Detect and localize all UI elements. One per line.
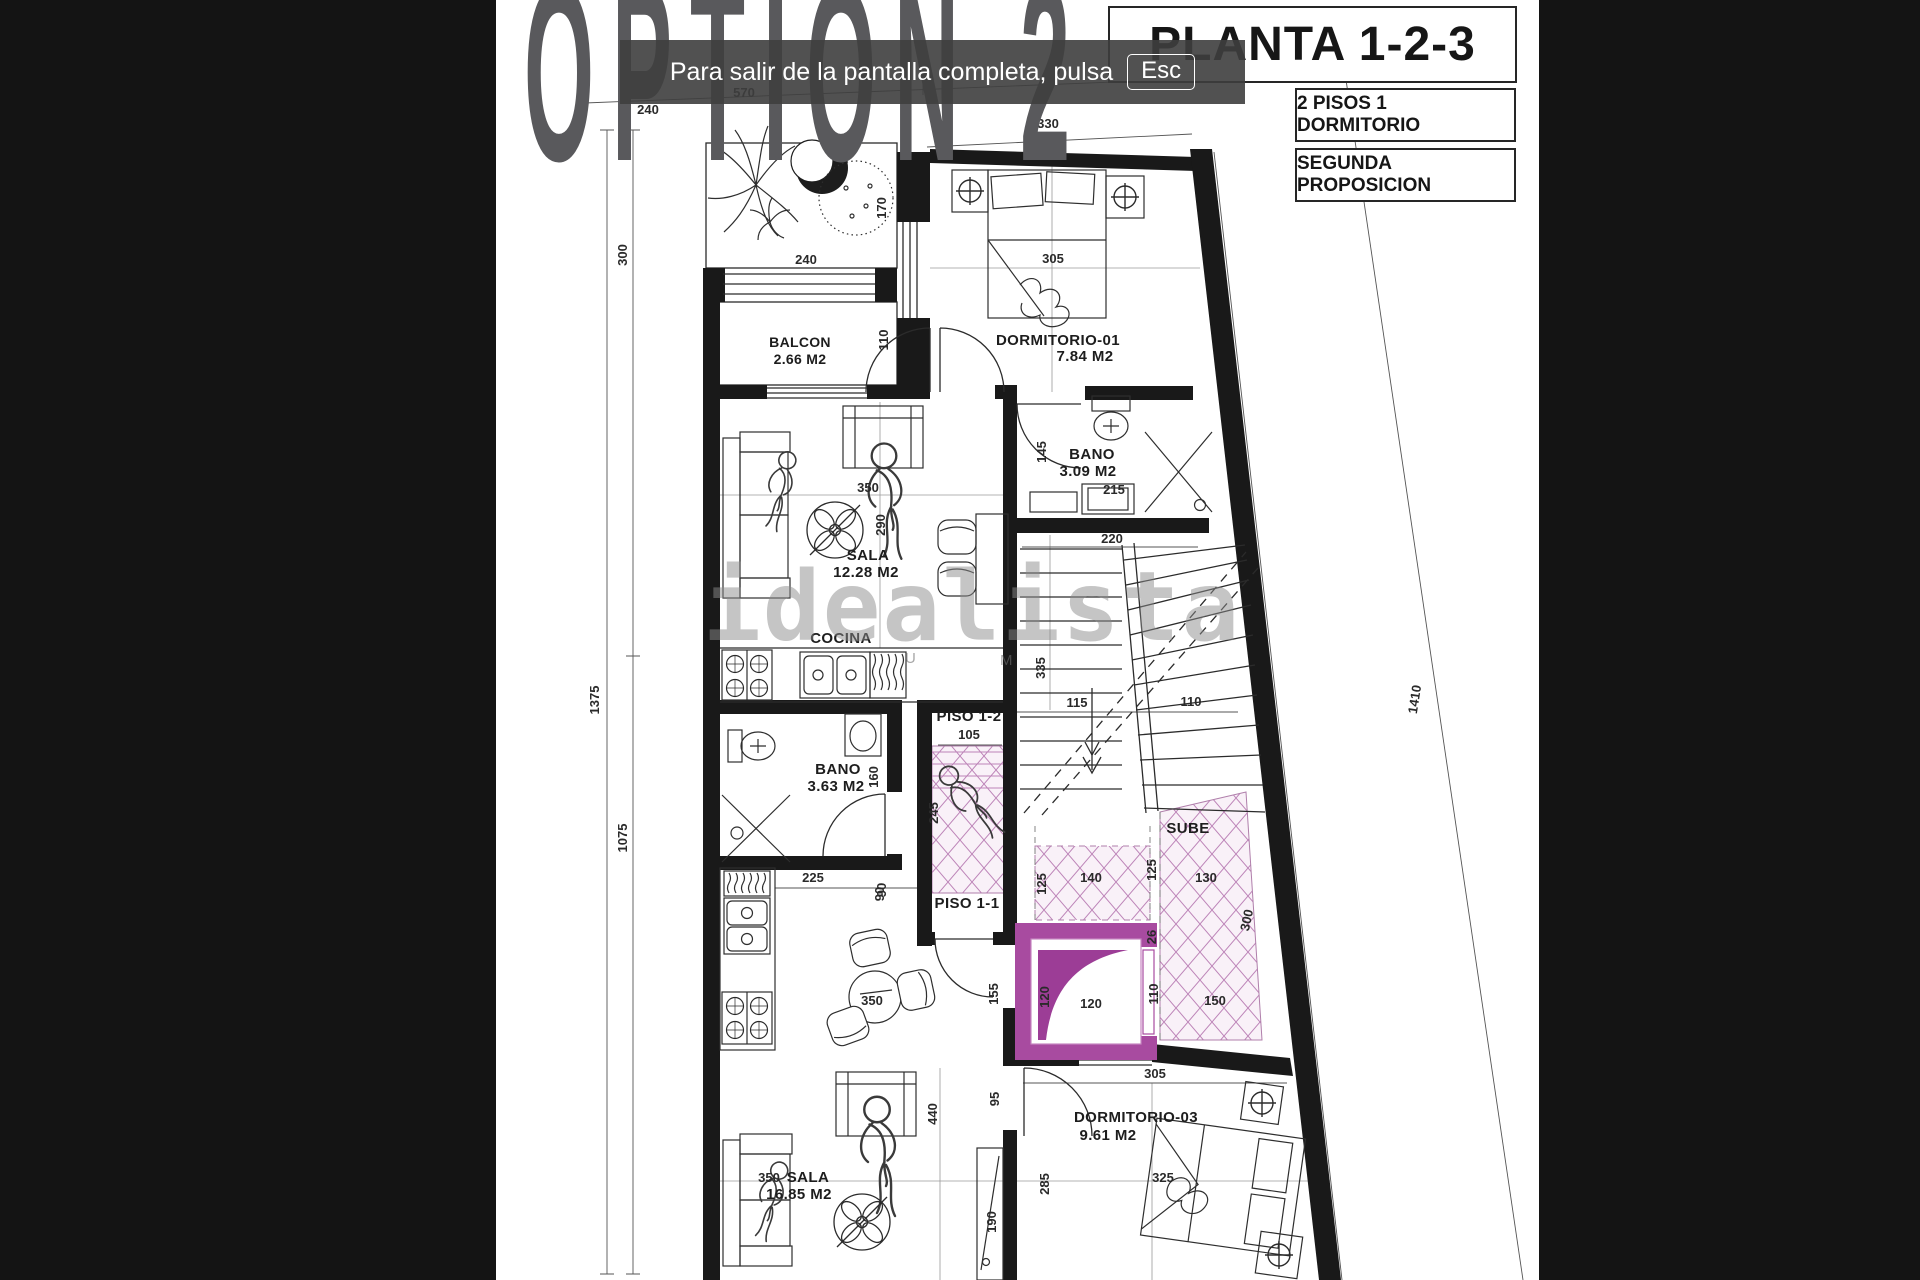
dim-elev-120v: 120	[1037, 986, 1052, 1008]
dim-balcon-110: 110	[876, 330, 891, 351]
room-label-balcon: BALCON	[769, 334, 831, 350]
room-area-dorm03: 9.61 M2	[1080, 1127, 1137, 1144]
esc-key-hint: Esc	[1127, 54, 1195, 90]
dim-sala2-350: 350	[758, 1170, 780, 1185]
dim-hatchA-125R: 125	[1144, 859, 1159, 881]
dim-table2-350: 350	[861, 993, 883, 1008]
dim-sala2-95: 95	[987, 1092, 1002, 1106]
dim-dorm01-305: 305	[1042, 251, 1064, 266]
room-label-dorm03: DORMITORIO-03	[1074, 1109, 1198, 1126]
watermark-fragment-right: M	[1000, 652, 1013, 669]
dim-left-300: 300	[615, 244, 630, 266]
dim-stairs-115: 115	[1067, 695, 1088, 710]
fullscreen-image-viewer: 240 570 330 240 170 1375 300 1075 1410 B…	[0, 0, 1920, 1280]
dim-bano2-160: 160	[866, 766, 881, 788]
plan-subtitle1-box: 2 PISOS 1 DORMITORIO	[1295, 88, 1516, 142]
dim-elev-110: 110	[1146, 984, 1161, 1005]
room-area-dorm01: 7.84 M2	[1057, 348, 1114, 365]
dim-dorm03-305: 305	[1144, 1066, 1166, 1081]
dim-stairs-110: 110	[1181, 694, 1202, 709]
watermark-fragment-left: U	[905, 650, 916, 667]
room-label-sala2: SALA	[787, 1169, 829, 1186]
plan-subtitle2-text: SEGUNDA PROPOSICION	[1297, 153, 1514, 197]
room-area-bano2: 3.63 M2	[808, 778, 865, 795]
dim-sala1-350: 350	[857, 480, 879, 495]
dim-hatchB-150: 150	[1204, 993, 1226, 1008]
dim-hatchA-140: 140	[1080, 870, 1102, 885]
dim-piso12-245: 245	[926, 802, 941, 824]
room-label-bano1: BANO	[1069, 446, 1115, 463]
room-label-bano2: BANO	[815, 761, 861, 778]
room-area-bano1: 3.09 M2	[1060, 463, 1117, 480]
dim-left-1375: 1375	[587, 686, 602, 715]
dim-dorm03-285: 285	[1037, 1173, 1052, 1195]
room-area-balcon: 2.66 M2	[774, 351, 827, 367]
dim-kit2-225: 225	[802, 870, 824, 885]
dim-piso12-105: 105	[958, 727, 980, 742]
plan-subtitle2-box: SEGUNDA PROPOSICION	[1295, 148, 1516, 202]
room-label-piso11: PISO 1-1	[935, 895, 1000, 912]
dim-stairs-220: 220	[1101, 531, 1123, 546]
dim-hatchB-130: 130	[1195, 870, 1217, 885]
dim-sala2-440: 440	[925, 1103, 940, 1125]
room-label-sube: SUBE	[1166, 820, 1209, 837]
plan-subtitle1-text: 2 PISOS 1 DORMITORIO	[1297, 93, 1514, 137]
toast-message: Para salir de la pantalla completa, puls…	[670, 58, 1113, 87]
dim-left-1075: 1075	[615, 824, 630, 853]
idealista-watermark: idealista	[703, 551, 1241, 663]
room-area-sala2: 16.85 M2	[766, 1186, 832, 1203]
dim-dorm03-325: 325	[1152, 1170, 1174, 1185]
room-label-piso12: PISO 1-2	[937, 708, 1002, 725]
dim-sala2-190: 190	[984, 1211, 999, 1233]
dim-garden-240: 240	[795, 252, 817, 267]
fullscreen-exit-toast: Para salir de la pantalla completa, puls…	[620, 40, 1245, 104]
dim-bano1-145: 145	[1034, 441, 1049, 463]
room-label-dorm01: DORMITORIO-01	[996, 332, 1120, 349]
dim-sala1-290: 290	[873, 514, 888, 536]
dim-bano1-215: 215	[1103, 482, 1125, 497]
dim-hatchA-125L: 125	[1034, 873, 1049, 895]
dim-elev-120h: 120	[1080, 996, 1102, 1011]
dim-kit2-90: 90	[872, 887, 887, 901]
dim-corr-155: 155	[986, 983, 1001, 1005]
dim-hatchB-26: 26	[1144, 930, 1159, 944]
